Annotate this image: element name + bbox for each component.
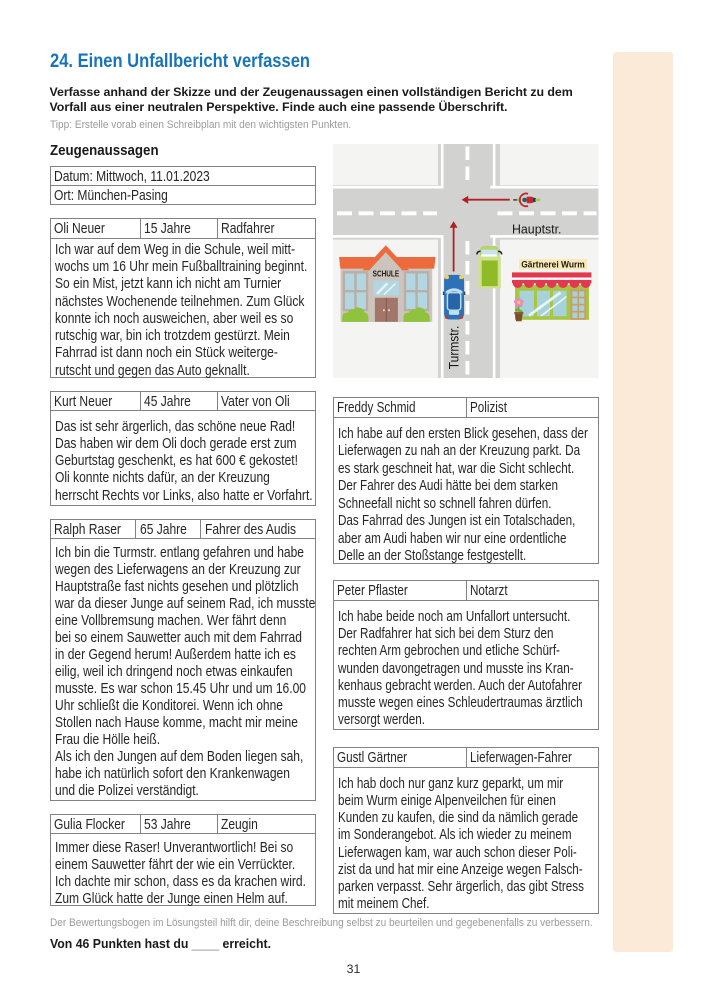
svg-text:SCHULE: SCHULE (373, 269, 400, 279)
svg-text:Hauptstr.: Hauptstr. (512, 222, 562, 237)
svg-text:Gärtnerei Wurm: Gärtnerei Wurm (521, 260, 585, 271)
svg-text:Turmstr.: Turmstr. (447, 326, 462, 370)
